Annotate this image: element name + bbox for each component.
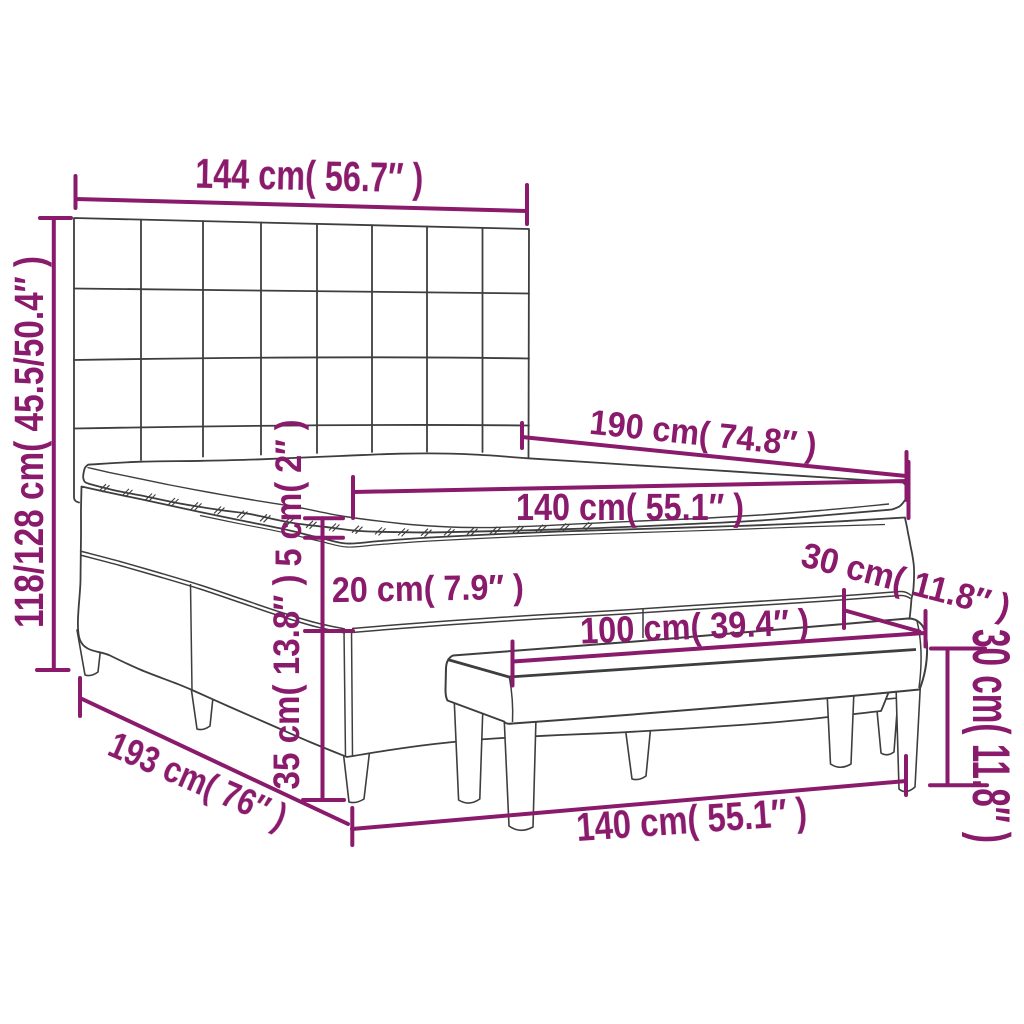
- svg-text:118/128 cm( 45.5/50.4″ ): 118/128 cm( 45.5/50.4″ ): [6, 256, 52, 628]
- svg-text:35 cm( 13.8″ ): 35 cm( 13.8″ ): [266, 575, 307, 790]
- svg-text:140 cm( 55.1″ ): 140 cm( 55.1″ ): [516, 487, 744, 529]
- svg-text:30 cm( 11.8″ ): 30 cm( 11.8″ ): [961, 629, 1020, 843]
- svg-text:5 cm( 2″ ): 5 cm( 2″ ): [268, 420, 309, 567]
- svg-text:144 cm( 56.7″ ): 144 cm( 56.7″ ): [195, 150, 424, 202]
- svg-text:20 cm( 7.9″ ): 20 cm( 7.9″ ): [331, 567, 524, 610]
